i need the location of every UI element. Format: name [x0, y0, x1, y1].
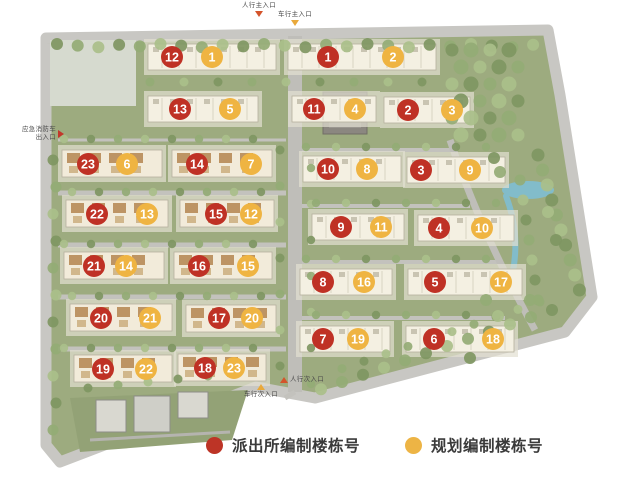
svg-text:6: 6 [124, 158, 131, 172]
svg-text:22: 22 [90, 208, 104, 222]
red-marker-21: 21 [83, 255, 105, 277]
svg-text:9: 9 [467, 164, 474, 178]
entrance-vehicle-secondary: 车行次入口 [244, 384, 278, 399]
orange-marker-4: 4 [344, 98, 366, 120]
red-marker-8: 8 [312, 271, 334, 293]
svg-text:20: 20 [245, 312, 259, 326]
planning-dot-icon [405, 437, 422, 454]
orange-marker-19: 19 [347, 328, 369, 350]
entrance-label-vehicle-main: 车行主入口 [278, 11, 312, 19]
legend-item-police: 派出所编制楼栋号 [206, 434, 360, 456]
entrance-emergency-fire: 应急消防车出入口 [20, 126, 64, 142]
orange-marker-5: 5 [219, 98, 241, 120]
svg-text:18: 18 [198, 362, 212, 376]
red-marker-16: 16 [188, 255, 210, 277]
svg-text:1: 1 [209, 51, 216, 65]
entrance-label-pedestrian-secondary: 人行次入口 [290, 376, 324, 384]
red-marker-19: 19 [92, 358, 114, 380]
vehicle-main-triangle-icon [291, 20, 299, 26]
svg-text:2: 2 [405, 104, 412, 118]
svg-text:13: 13 [140, 208, 154, 222]
building-slab-L1A [58, 145, 166, 182]
svg-text:5: 5 [227, 103, 234, 117]
red-marker-7: 7 [312, 328, 334, 350]
svg-text:20: 20 [94, 312, 108, 326]
orange-marker-17: 17 [490, 271, 512, 293]
svg-text:8: 8 [320, 276, 327, 290]
red-marker-20: 20 [90, 307, 112, 329]
svg-text:16: 16 [192, 260, 206, 274]
svg-text:21: 21 [143, 312, 157, 326]
legend: 派出所编制楼栋号 规划编制楼栋号 [206, 434, 543, 456]
svg-text:13: 13 [173, 103, 187, 117]
emergency-fire-triangle-icon [58, 130, 64, 138]
legend-label-planning: 规划编制楼栋号 [431, 434, 543, 456]
red-marker-18: 18 [194, 357, 216, 379]
orange-marker-10: 10 [471, 217, 493, 239]
red-marker-17: 17 [208, 307, 230, 329]
entrance-label-vehicle-secondary: 车行次入口 [244, 391, 278, 399]
red-marker-3: 3 [410, 159, 432, 181]
svg-text:3: 3 [418, 164, 425, 178]
svg-text:12: 12 [244, 208, 258, 222]
svg-text:14: 14 [119, 260, 133, 274]
svg-text:10: 10 [321, 163, 335, 177]
svg-text:4: 4 [436, 222, 443, 236]
entrance-pedestrian-main: 人行主入口 [242, 2, 276, 17]
entrance-vehicle-main: 车行主入口 [278, 11, 312, 26]
orange-marker-7: 7 [240, 153, 262, 175]
svg-text:7: 7 [320, 333, 327, 347]
pedestrian-secondary-triangle-icon [280, 377, 288, 383]
red-marker-22: 22 [86, 203, 108, 225]
legend-item-planning: 规划编制楼栋号 [405, 434, 543, 456]
svg-text:8: 8 [364, 163, 371, 177]
orange-marker-15: 15 [237, 255, 259, 277]
red-marker-11: 11 [303, 98, 325, 120]
red-marker-1: 1 [317, 46, 339, 68]
building-slab-T2L [144, 91, 262, 127]
building-slab-L2B [176, 195, 278, 232]
red-marker-6: 6 [423, 328, 445, 350]
red-marker-12: 12 [161, 46, 183, 68]
svg-text:18: 18 [486, 333, 500, 347]
entrance-pedestrian-secondary: 人行次入口 [280, 376, 324, 384]
svg-text:2: 2 [390, 51, 397, 65]
svg-text:22: 22 [139, 363, 153, 377]
red-marker-14: 14 [186, 153, 208, 175]
svg-text:16: 16 [357, 276, 371, 290]
red-marker-4: 4 [428, 217, 450, 239]
building-slab-L3A [60, 247, 168, 284]
orange-marker-14: 14 [115, 255, 137, 277]
svg-text:21: 21 [87, 260, 101, 274]
red-marker-2: 2 [397, 99, 419, 121]
vehicle-secondary-triangle-icon [257, 384, 265, 390]
building-slab-R3L [296, 264, 396, 300]
entrance-label-emergency-fire: 应急消防车出入口 [20, 126, 56, 142]
red-marker-13: 13 [169, 98, 191, 120]
red-marker-15: 15 [205, 203, 227, 225]
svg-text:14: 14 [190, 158, 204, 172]
building-slab-T2M [288, 91, 380, 127]
svg-text:11: 11 [374, 221, 387, 235]
svg-text:19: 19 [351, 333, 365, 347]
svg-text:9: 9 [338, 221, 345, 235]
orange-marker-12: 12 [240, 203, 262, 225]
pedestrian-main-triangle-icon [255, 11, 263, 17]
legend-label-police: 派出所编制楼栋号 [232, 434, 360, 456]
orange-marker-23: 23 [223, 357, 245, 379]
svg-text:3: 3 [449, 104, 456, 118]
building-slab-R2L [308, 209, 408, 245]
orange-marker-2: 2 [382, 46, 404, 68]
building-slab-L4B [182, 300, 280, 337]
svg-text:17: 17 [212, 312, 226, 326]
svg-text:17: 17 [494, 276, 508, 290]
orange-marker-18: 18 [482, 328, 504, 350]
orange-marker-9: 9 [459, 159, 481, 181]
svg-text:4: 4 [352, 103, 359, 117]
site-plan: 1211213511423108399114108165177196182361… [0, 0, 640, 480]
red-marker-5: 5 [424, 271, 446, 293]
svg-text:12: 12 [165, 51, 179, 65]
orange-marker-8: 8 [356, 158, 378, 180]
orange-marker-21: 21 [139, 307, 161, 329]
building-slab-L3B [170, 247, 276, 284]
orange-marker-1: 1 [201, 46, 223, 68]
red-marker-10: 10 [317, 158, 339, 180]
red-marker-9: 9 [330, 216, 352, 238]
svg-text:23: 23 [81, 158, 95, 172]
red-marker-23: 23 [77, 153, 99, 175]
building-slab-L5A [70, 350, 176, 387]
svg-text:11: 11 [307, 103, 320, 117]
police-dot-icon [206, 437, 223, 454]
svg-text:10: 10 [475, 222, 489, 236]
svg-text:15: 15 [241, 260, 255, 274]
orange-marker-22: 22 [135, 358, 157, 380]
entrance-label-pedestrian-main: 人行主入口 [242, 2, 276, 10]
svg-text:23: 23 [227, 362, 241, 376]
orange-marker-11: 11 [370, 216, 392, 238]
svg-text:6: 6 [431, 333, 438, 347]
paved-plot [50, 40, 136, 106]
orange-marker-6: 6 [116, 153, 138, 175]
svg-text:5: 5 [432, 276, 439, 290]
svg-text:19: 19 [96, 363, 110, 377]
svg-text:15: 15 [209, 208, 223, 222]
orange-marker-3: 3 [441, 99, 463, 121]
orange-marker-20: 20 [241, 307, 263, 329]
svg-text:7: 7 [248, 158, 255, 172]
svg-text:1: 1 [325, 51, 332, 65]
orange-marker-16: 16 [353, 271, 375, 293]
site-plan-canvas: 1211213511423108399114108165177196182361… [0, 0, 640, 480]
building-slab-L5B [174, 349, 270, 386]
orange-marker-13: 13 [136, 203, 158, 225]
